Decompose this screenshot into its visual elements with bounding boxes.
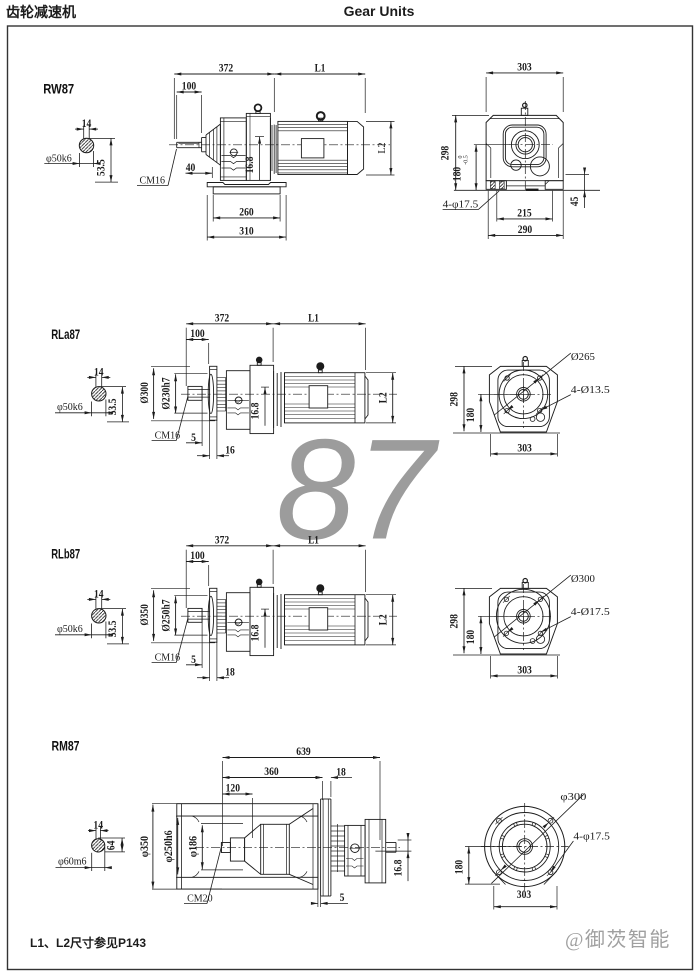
svg-text:L2: L2 [377, 142, 388, 153]
svg-text:372: 372 [215, 534, 230, 546]
svg-text:16.8: 16.8 [393, 859, 405, 876]
svg-text:齿轮减速机: 齿轮减速机 [6, 4, 76, 20]
svg-text:180: 180 [453, 860, 465, 875]
svg-text:53.5: 53.5 [96, 159, 108, 176]
svg-text:18: 18 [336, 767, 346, 779]
svg-text:290: 290 [518, 224, 533, 236]
svg-text:φ50k6: φ50k6 [46, 154, 72, 165]
svg-text:L2: L2 [377, 392, 389, 403]
svg-text:639: 639 [296, 746, 311, 758]
svg-text:L1: L1 [315, 63, 326, 75]
svg-text:L2: L2 [377, 614, 389, 625]
svg-text:180: 180 [465, 630, 477, 645]
svg-text:100: 100 [190, 328, 205, 340]
svg-text:φ186: φ186 [188, 836, 200, 858]
svg-text:5: 5 [191, 432, 196, 444]
svg-text:100: 100 [182, 81, 197, 93]
svg-text:215: 215 [517, 207, 532, 219]
svg-text:φ300: φ300 [560, 792, 586, 803]
svg-text:16.8: 16.8 [249, 402, 261, 419]
svg-text:φ250h6: φ250h6 [163, 830, 175, 862]
svg-text:4-Ø17.5: 4-Ø17.5 [571, 607, 610, 618]
svg-text:φ350: φ350 [139, 836, 151, 858]
svg-text:14: 14 [93, 819, 103, 831]
svg-text:L1、L2尺寸参见P143: L1、L2尺寸参见P143 [30, 935, 146, 950]
svg-text:40: 40 [186, 162, 196, 174]
svg-text:RLb87: RLb87 [51, 546, 80, 562]
svg-text:180: 180 [452, 167, 464, 182]
svg-text:-0.5: -0.5 [463, 155, 469, 165]
svg-text:303: 303 [517, 664, 532, 676]
svg-text:4-Ø13.5: 4-Ø13.5 [571, 385, 610, 396]
svg-text:45: 45 [569, 196, 581, 206]
svg-text:φ50k6: φ50k6 [57, 624, 83, 635]
svg-text:360: 360 [264, 766, 279, 778]
svg-text:CM16: CM16 [140, 176, 166, 187]
svg-text:16: 16 [225, 444, 235, 456]
svg-text:303: 303 [517, 889, 532, 901]
svg-text:4-φ17.5: 4-φ17.5 [573, 832, 610, 843]
svg-text:120: 120 [226, 783, 241, 795]
svg-text:RLa87: RLa87 [51, 326, 80, 342]
svg-text:372: 372 [219, 63, 234, 75]
svg-text:4-φ17.5: 4-φ17.5 [443, 200, 479, 211]
svg-text:100: 100 [190, 550, 205, 562]
svg-text:303: 303 [517, 61, 532, 73]
svg-text:16.8: 16.8 [244, 156, 256, 173]
svg-text:RW87: RW87 [43, 81, 74, 97]
svg-text:298: 298 [449, 614, 461, 629]
svg-text:298: 298 [439, 146, 451, 161]
svg-text:18: 18 [225, 666, 235, 678]
svg-text:Ø250h7: Ø250h7 [160, 599, 172, 631]
svg-text:64: 64 [106, 840, 118, 850]
svg-text:Ø300: Ø300 [139, 382, 151, 404]
svg-text:L1: L1 [308, 312, 319, 324]
svg-text:372: 372 [215, 312, 230, 324]
svg-text:RM87: RM87 [52, 738, 80, 754]
svg-text:Ø350: Ø350 [139, 604, 151, 626]
svg-text:Ø230h7: Ø230h7 [160, 377, 172, 409]
svg-text:180: 180 [465, 408, 477, 423]
svg-text:Gear Units: Gear Units [344, 3, 415, 19]
svg-text:@御茨智能: @御茨智能 [565, 928, 671, 951]
svg-text:5: 5 [191, 654, 196, 666]
svg-text:14: 14 [82, 118, 92, 130]
svg-text:Ø265: Ø265 [571, 352, 595, 363]
svg-text:φ60m6: φ60m6 [58, 856, 87, 867]
svg-text:298: 298 [449, 392, 461, 407]
svg-text:260: 260 [239, 206, 254, 218]
svg-text:310: 310 [239, 226, 254, 238]
svg-text:φ50k6: φ50k6 [57, 402, 83, 413]
svg-text:L1: L1 [308, 534, 319, 546]
svg-text:Ø300: Ø300 [571, 574, 595, 585]
svg-text:14: 14 [94, 588, 104, 600]
svg-text:53.5: 53.5 [107, 620, 119, 637]
svg-text:14: 14 [94, 366, 104, 378]
svg-text:16.8: 16.8 [249, 624, 261, 641]
svg-text:303: 303 [517, 442, 532, 454]
svg-text:5: 5 [340, 892, 345, 904]
svg-text:53.5: 53.5 [107, 398, 119, 415]
